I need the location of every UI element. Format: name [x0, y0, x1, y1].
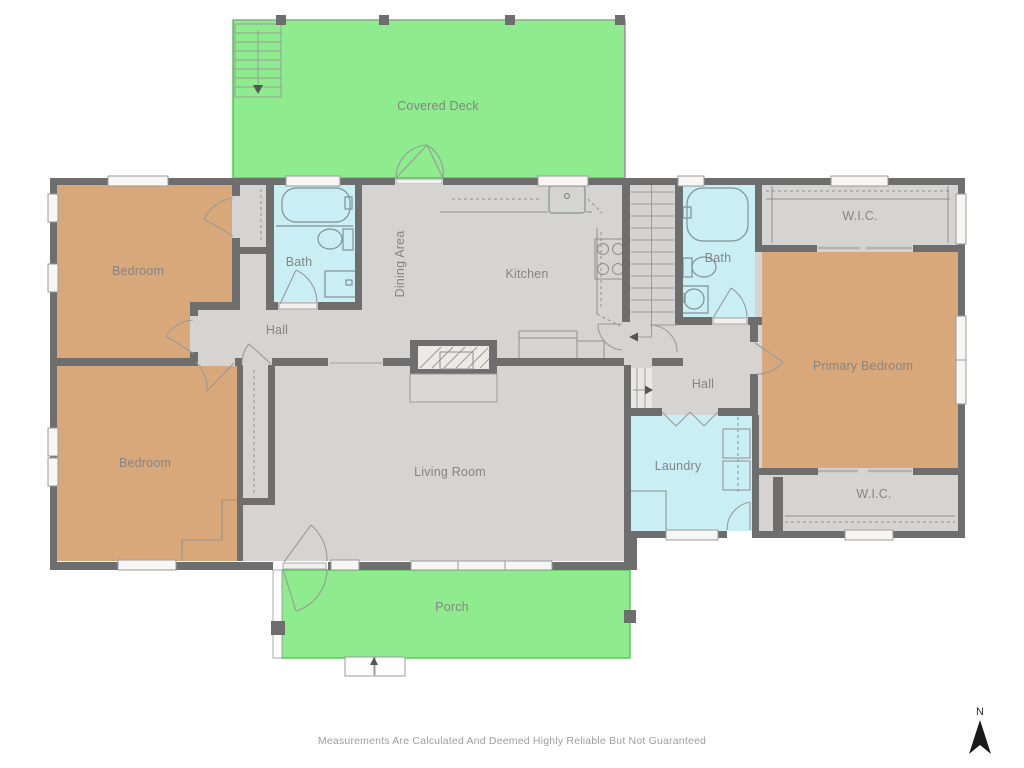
hearth: [410, 374, 497, 402]
window: [505, 561, 552, 570]
room-label-kitchen: Kitchen: [505, 267, 548, 281]
deck-post-icon: [276, 15, 286, 25]
door-threshold: [396, 179, 442, 184]
room-label-hall-left: Hall: [266, 323, 288, 337]
room-label-covered-deck: Covered Deck: [397, 99, 479, 113]
window: [538, 176, 588, 186]
window: [678, 176, 704, 186]
compass: N: [962, 706, 998, 762]
room-laundry: [631, 415, 752, 531]
room-label-bath-right: Bath: [705, 251, 732, 265]
fireplace: [410, 340, 497, 402]
window: [331, 560, 359, 570]
window: [108, 176, 168, 186]
room-label-bath-left: Bath: [286, 255, 313, 269]
room-label-primary-bedroom: Primary Bedroom: [813, 359, 913, 373]
room-label-living-room: Living Room: [414, 465, 486, 479]
window: [411, 561, 458, 570]
porch-post-icon: [271, 621, 285, 635]
window: [286, 176, 340, 186]
door-threshold: [713, 318, 747, 324]
window: [458, 561, 505, 570]
disclaimer-text: Measurements Are Calculated And Deemed H…: [318, 735, 706, 747]
room-label-wic-bottom: W.I.C.: [856, 487, 891, 501]
floorplan: Covered Deck Bedroom Bath Dining Area Ki…: [0, 0, 1024, 768]
window: [666, 530, 718, 540]
window: [118, 560, 176, 570]
deck-post-icon: [505, 15, 515, 25]
porch-post-icon: [624, 610, 636, 623]
window: [956, 194, 966, 244]
room-bedroom-top-left: [57, 185, 232, 303]
window: [956, 316, 966, 360]
door-threshold: [279, 303, 317, 309]
room-label-porch: Porch: [435, 600, 469, 614]
room-label-wic-top: W.I.C.: [842, 209, 877, 223]
window: [956, 360, 966, 404]
floorplan-drawing: [0, 0, 1024, 768]
room-label-dining-area: Dining Area: [393, 231, 407, 298]
porch-step: [345, 657, 375, 676]
deck-post-icon: [379, 15, 389, 25]
porch-step: [375, 657, 405, 676]
window: [845, 530, 893, 540]
window: [48, 428, 58, 456]
room-porch: [282, 570, 630, 658]
porch-open-edge: [273, 570, 282, 658]
room-label-laundry: Laundry: [655, 459, 702, 473]
window: [48, 194, 58, 222]
deck-post-icon: [615, 15, 625, 25]
north-arrow-icon: [962, 718, 998, 758]
room-label-bedroom-top-left: Bedroom: [112, 264, 164, 278]
window: [48, 264, 58, 292]
compass-north-label: N: [962, 706, 998, 718]
room-label-hall-right: Hall: [692, 377, 714, 391]
window: [831, 176, 888, 186]
door-threshold: [283, 563, 326, 569]
room-label-bedroom-bottom-left: Bedroom: [119, 456, 171, 470]
window: [48, 458, 58, 486]
